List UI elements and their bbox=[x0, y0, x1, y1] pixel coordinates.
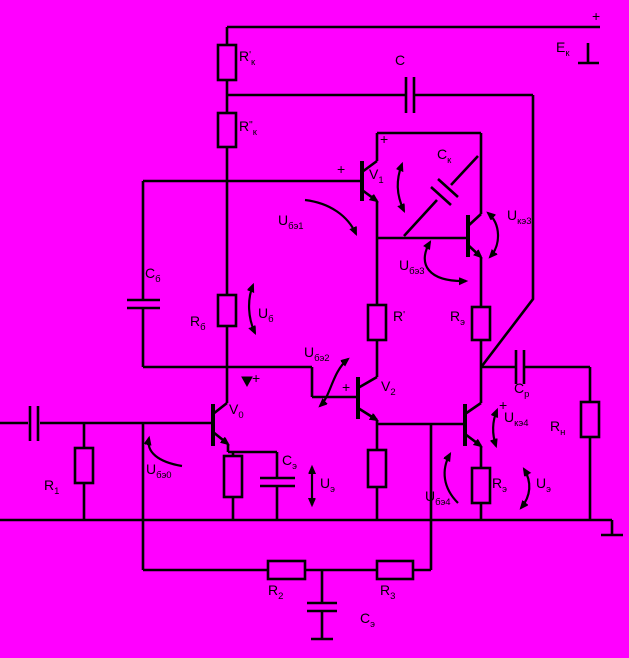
label-r3: R3 bbox=[380, 583, 395, 602]
label-cb-main: C bbox=[145, 265, 155, 281]
label-plus-v1c: + bbox=[380, 132, 388, 146]
label-plus-rail: + bbox=[592, 9, 600, 23]
labels-layer: R'кR"кCEк++V1Cк+Uбэ1Uкэ3Uбэ3CбRбUбR'RэUб… bbox=[0, 0, 629, 658]
label-ube1: Uбэ1 bbox=[278, 213, 304, 232]
label-plus-v1b: + bbox=[337, 162, 345, 176]
label-v1-sub: 1 bbox=[378, 175, 383, 186]
label-r-prime-main: R bbox=[393, 308, 403, 324]
label-cr: Cр bbox=[514, 381, 529, 400]
label-ce1-main: C bbox=[282, 452, 292, 468]
label-ube2-main: U bbox=[304, 344, 314, 360]
label-ube3-sub: бэ3 bbox=[409, 266, 424, 277]
label-ube1-main: U bbox=[278, 212, 288, 228]
label-uke3-sub: кэ3 bbox=[517, 216, 531, 227]
label-ce2-main: C bbox=[360, 610, 370, 626]
label-ube4: Uбэ4 bbox=[425, 489, 451, 508]
label-r2-main: R bbox=[268, 582, 278, 598]
label-ube0-main: U bbox=[146, 461, 156, 477]
label-ce1: Cэ bbox=[282, 453, 297, 472]
schematic-canvas: R'кR"кCEк++V1Cк+Uбэ1Uкэ3Uбэ3CбRбUбR'RэUб… bbox=[0, 0, 629, 658]
label-re-mid: Rэ bbox=[450, 309, 465, 328]
label-ce2-sub: э bbox=[370, 619, 375, 630]
label-uke4-main: U bbox=[504, 409, 514, 425]
label-re4: Rэ bbox=[492, 476, 507, 495]
label-ube4-main: U bbox=[425, 488, 435, 504]
label-rk-prime-sub: к bbox=[251, 57, 255, 68]
label-ub-sub: б bbox=[268, 314, 273, 325]
label-ube0: Uбэ0 bbox=[146, 462, 172, 481]
label-re4-sub: э bbox=[502, 484, 507, 495]
label-ube4-sub: бэ4 bbox=[435, 497, 450, 508]
label-rn-sub: н bbox=[560, 427, 565, 438]
label-cr-main: C bbox=[514, 380, 524, 396]
label-ue1-main: U bbox=[320, 475, 330, 491]
label-ube1-sub: бэ1 bbox=[288, 221, 303, 232]
label-rb: Rб bbox=[190, 314, 206, 333]
label-ub-main: U bbox=[258, 305, 268, 321]
label-uke3: Uкэ3 bbox=[507, 208, 532, 227]
label-ck-sub: к bbox=[447, 155, 451, 166]
label-v1: V1 bbox=[369, 167, 384, 186]
label-r2: R2 bbox=[268, 583, 283, 602]
label-re-mid-main: R bbox=[450, 308, 460, 324]
label-ce2: Cэ bbox=[360, 611, 375, 630]
label-rk-dprime-main: R bbox=[239, 118, 249, 134]
label-r2-sub: 2 bbox=[278, 591, 283, 602]
label-v2-sub: 2 bbox=[390, 387, 395, 398]
label-rb-sub: б bbox=[200, 322, 205, 333]
label-uke4: Uкэ4 bbox=[504, 410, 529, 429]
label-v0-sub: 0 bbox=[238, 410, 243, 421]
label-uke3-main: U bbox=[507, 207, 517, 223]
label-r1-sub: 1 bbox=[54, 486, 59, 497]
label-r-prime-sup: ' bbox=[403, 310, 405, 321]
label-r1-main: R bbox=[44, 477, 54, 493]
label-ek-sub: к bbox=[565, 48, 569, 59]
label-re-mid-sub: э bbox=[460, 317, 465, 328]
label-c-top-main: C bbox=[395, 52, 405, 68]
label-r1: R1 bbox=[44, 478, 59, 497]
label-cr-sub: р bbox=[524, 389, 529, 400]
label-ue1: Uэ bbox=[320, 476, 335, 495]
label-rk-prime: R'к bbox=[239, 49, 255, 68]
label-plus-v0: + bbox=[252, 371, 260, 385]
label-ube2: Uбэ2 bbox=[304, 345, 330, 364]
label-r-prime: R' bbox=[393, 309, 405, 323]
label-ck-main: C bbox=[437, 146, 447, 162]
label-ue4-main: U bbox=[536, 475, 546, 491]
label-rn: Rн bbox=[550, 419, 565, 438]
label-cb-sub: б bbox=[155, 274, 160, 285]
label-r3-sub: 3 bbox=[390, 591, 395, 602]
label-ube2-sub: бэ2 bbox=[314, 353, 329, 364]
label-rk-dprime-sub: к bbox=[253, 127, 257, 138]
label-re4-main: R bbox=[492, 475, 502, 491]
label-ube3-main: U bbox=[399, 257, 409, 273]
label-v2: V2 bbox=[381, 379, 396, 398]
label-uke4-sub: кэ4 bbox=[514, 418, 528, 429]
label-ube0-sub: бэ0 bbox=[156, 470, 171, 481]
label-plus-v1c-main: + bbox=[380, 131, 388, 147]
label-plus-v2: + bbox=[342, 380, 350, 394]
label-rn-main: R bbox=[550, 418, 560, 434]
label-ue4: Uэ bbox=[536, 476, 551, 495]
label-c-top: C bbox=[395, 53, 405, 67]
label-v2-main: V bbox=[381, 378, 390, 394]
label-r3-main: R bbox=[380, 582, 390, 598]
label-v0-main: V bbox=[229, 401, 238, 417]
label-rk-dprime: R"к bbox=[239, 119, 257, 138]
label-ue4-sub: э bbox=[546, 484, 551, 495]
label-ek-main: E bbox=[556, 39, 565, 55]
label-ce1-sub: э bbox=[292, 461, 297, 472]
label-v0: V0 bbox=[229, 402, 244, 421]
label-ck: Cк bbox=[437, 147, 451, 166]
label-ue1-sub: э bbox=[330, 484, 335, 495]
label-rb-main: R bbox=[190, 313, 200, 329]
label-plus-rail-main: + bbox=[592, 8, 600, 24]
label-ube3: Uбэ3 bbox=[399, 258, 425, 277]
label-plus-v0-main: + bbox=[252, 370, 260, 386]
label-ek: Eк bbox=[556, 40, 570, 59]
label-v1-main: V bbox=[369, 166, 378, 182]
label-ub: Uб bbox=[258, 306, 274, 325]
label-plus-v1b-main: + bbox=[337, 161, 345, 177]
label-plus-v2-main: + bbox=[342, 379, 350, 395]
label-cb: Cб bbox=[145, 266, 161, 285]
label-rk-prime-main: R bbox=[239, 48, 249, 64]
